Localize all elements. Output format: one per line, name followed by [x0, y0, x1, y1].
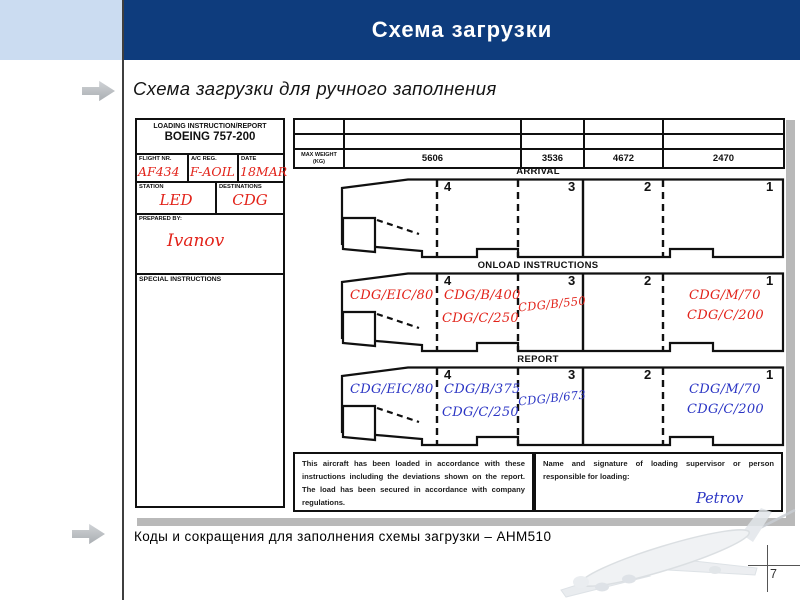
report-entry: CDG/EIC/80 — [350, 382, 434, 397]
flight-nr-label: FLIGHT NR. — [137, 155, 187, 162]
special-instructions-label: SPECIAL INSTRUCTIONS — [137, 275, 283, 283]
table-row-empty-1 — [294, 119, 784, 134]
compartment-number: 1 — [766, 179, 773, 194]
flight-nr-cell: FLIGHT NR. AF434 — [137, 155, 187, 181]
signature-box: Name and signature of loading supervisor… — [534, 452, 783, 512]
form-title: LOADING INSTRUCTION/REPORT — [137, 120, 283, 130]
onload-entry: CDG/EIC/80 — [350, 288, 434, 303]
slide: Схема загрузки Схема загрузки для ручног… — [0, 0, 800, 600]
ac-reg-cell: A/C REG. F-AOIL — [187, 155, 237, 181]
table-cell — [584, 134, 663, 149]
signature-label: Name and signature of loading supervisor… — [543, 459, 774, 481]
report-entry: CDG/C/200 — [687, 402, 764, 417]
compartment-number: 2 — [644, 367, 651, 382]
compartment-number: 3 — [568, 273, 575, 288]
title-bar: Схема загрузки — [124, 0, 800, 60]
table-cell — [294, 134, 344, 149]
onload-entry: CDG/C/250 — [442, 311, 519, 326]
date-value: 18MAR — [240, 164, 287, 179]
aircraft-hold-outline-icon — [340, 178, 785, 259]
compartment-number: 1 — [766, 273, 773, 288]
report-entry: CDG/B/375 — [444, 382, 521, 397]
slide-subtitle: Схема загрузки для ручного заполнения — [133, 78, 497, 100]
form-header: LOADING INSTRUCTION/REPORT BOEING 757-20… — [137, 120, 283, 155]
compartment-number: 4 — [444, 179, 451, 194]
compartment-number: 2 — [644, 273, 651, 288]
table-cell — [663, 119, 784, 134]
max-weight-label: MAX WEIGHT — [295, 152, 343, 158]
table-cell — [521, 134, 584, 149]
prepared-by-cell: PREPARED BY: Ivanov — [137, 215, 283, 275]
destinations-value: CDG — [217, 191, 283, 209]
flight-nr-value: AF434 — [138, 164, 180, 179]
prepared-by-signature: Ivanov — [167, 231, 224, 251]
bullet-arrow-icon — [72, 523, 105, 545]
onload-section-label: ONLOAD INSTRUCTIONS — [293, 260, 783, 271]
report-hold-diagram: 4 3 2 1 CDG/EIC/80 CDG/B/375 CDG/C/250 C… — [340, 366, 785, 447]
ac-reg-label: A/C REG. — [189, 155, 237, 162]
ac-reg-value: F-AOIL — [190, 164, 235, 179]
station-value: LED — [137, 191, 215, 209]
table-cell — [294, 119, 344, 134]
loading-form-image: LOADING INSTRUCTION/REPORT BOEING 757-20… — [128, 112, 786, 518]
page-number-rule-horizontal — [748, 565, 800, 566]
date-cell: DATE 18MAR — [237, 155, 283, 181]
certification-text: This aircraft has been loaded in accorda… — [302, 459, 525, 507]
special-instructions-cell: SPECIAL INSTRUCTIONS — [137, 275, 283, 283]
onload-entry: CDG/C/200 — [687, 308, 764, 323]
max-weight-unit: (KG) — [295, 159, 343, 165]
prepared-by-label: PREPARED BY: — [137, 215, 283, 222]
arrival-section-label: ARRIVAL — [293, 166, 783, 177]
station-row: STATION LED DESTINATIONS CDG — [137, 183, 283, 215]
compartment-number: 3 — [568, 179, 575, 194]
destinations-cell: DESTINATIONS CDG — [215, 183, 283, 213]
corner-accent-block — [0, 0, 122, 60]
table-cell — [344, 119, 521, 134]
airplane-watermark-icon — [545, 506, 800, 600]
report-entry: CDG/M/70 — [689, 382, 761, 397]
compartment-number: 3 — [568, 367, 575, 382]
station-cell: STATION LED — [137, 183, 215, 213]
page-number: 7 — [770, 567, 777, 581]
onload-entry: CDG/M/70 — [689, 288, 761, 303]
compartment-number: 2 — [644, 179, 651, 194]
destinations-label: DESTINATIONS — [217, 183, 283, 190]
table-cell — [663, 134, 784, 149]
vertical-rule — [122, 0, 124, 600]
loading-instruction-form: LOADING INSTRUCTION/REPORT BOEING 757-20… — [135, 118, 285, 508]
slide-caption: Коды и сокращения для заполнения схемы з… — [134, 529, 551, 544]
report-entry: CDG/C/250 — [442, 405, 519, 420]
onload-entry: CDG/B/400 — [444, 288, 521, 303]
flight-info-row: FLIGHT NR. AF434 A/C REG. F-AOIL DATE 18… — [137, 155, 283, 183]
table-cell — [584, 119, 663, 134]
date-label: DATE — [239, 155, 283, 162]
table-row-empty-2 — [294, 134, 784, 149]
bullet-arrow-icon — [82, 80, 115, 102]
aircraft-type: BOEING 757-200 — [137, 131, 283, 143]
table-cell — [521, 119, 584, 134]
table-cell — [344, 134, 521, 149]
arrival-hold-diagram: 4 3 2 1 — [340, 178, 785, 259]
report-section-label: REPORT — [293, 354, 783, 365]
compartment-number: 1 — [766, 367, 773, 382]
onload-hold-diagram: 4 3 2 1 CDG/EIC/80 CDG/B/400 CDG/C/250 C… — [340, 272, 785, 353]
compartment-number: 4 — [444, 273, 451, 288]
station-label: STATION — [137, 183, 215, 190]
max-weight-table: MAX WEIGHT (KG) 5606 3536 4672 2470 — [293, 118, 785, 169]
certification-statement-box: This aircraft has been loaded in accorda… — [293, 452, 534, 512]
page-title: Схема загрузки — [372, 17, 552, 43]
page-number-rule-vertical — [767, 545, 768, 592]
compartment-number: 4 — [444, 367, 451, 382]
